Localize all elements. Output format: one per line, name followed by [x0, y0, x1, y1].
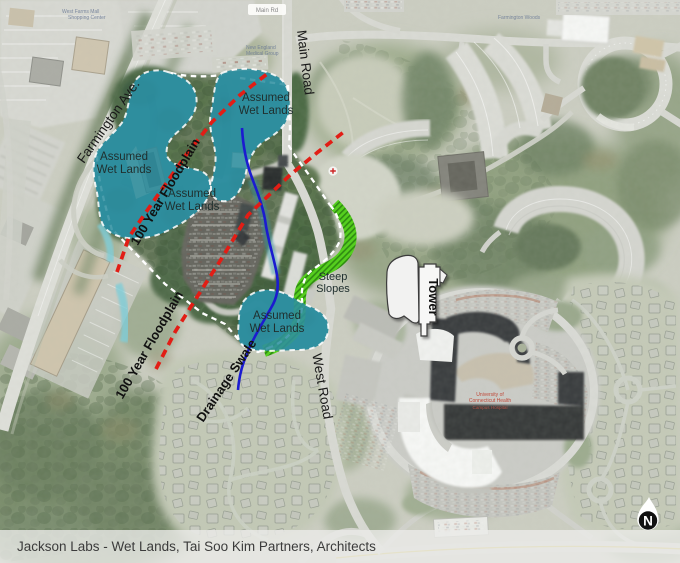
svg-text:Wet Lands: Wet Lands: [250, 323, 305, 335]
svg-text:Medical Group: Medical Group: [246, 51, 279, 57]
svg-text:Jackson Labs - Wet Lands, Tai: Jackson Labs - Wet Lands, Tai Soo Kim Pa…: [17, 539, 376, 554]
svg-text:Slopes: Slopes: [316, 283, 350, 295]
svg-text:Assumed: Assumed: [100, 151, 148, 163]
svg-text:Assumed: Assumed: [242, 92, 290, 104]
svg-text:Wet Lands: Wet Lands: [165, 201, 220, 213]
svg-text:Assumed: Assumed: [168, 188, 216, 200]
svg-text:Farmington Woods: Farmington Woods: [498, 15, 541, 21]
svg-text:Tower: Tower: [426, 278, 441, 315]
svg-text:Assumed: Assumed: [253, 310, 301, 322]
svg-text:Shopping Center: Shopping Center: [68, 15, 106, 21]
svg-text:Main Rd: Main Rd: [256, 8, 278, 14]
svg-text:Wet Lands: Wet Lands: [239, 105, 294, 117]
svg-text:N: N: [643, 514, 653, 529]
svg-text:Steep: Steep: [319, 271, 348, 283]
svg-text:Wet Lands: Wet Lands: [97, 164, 152, 176]
